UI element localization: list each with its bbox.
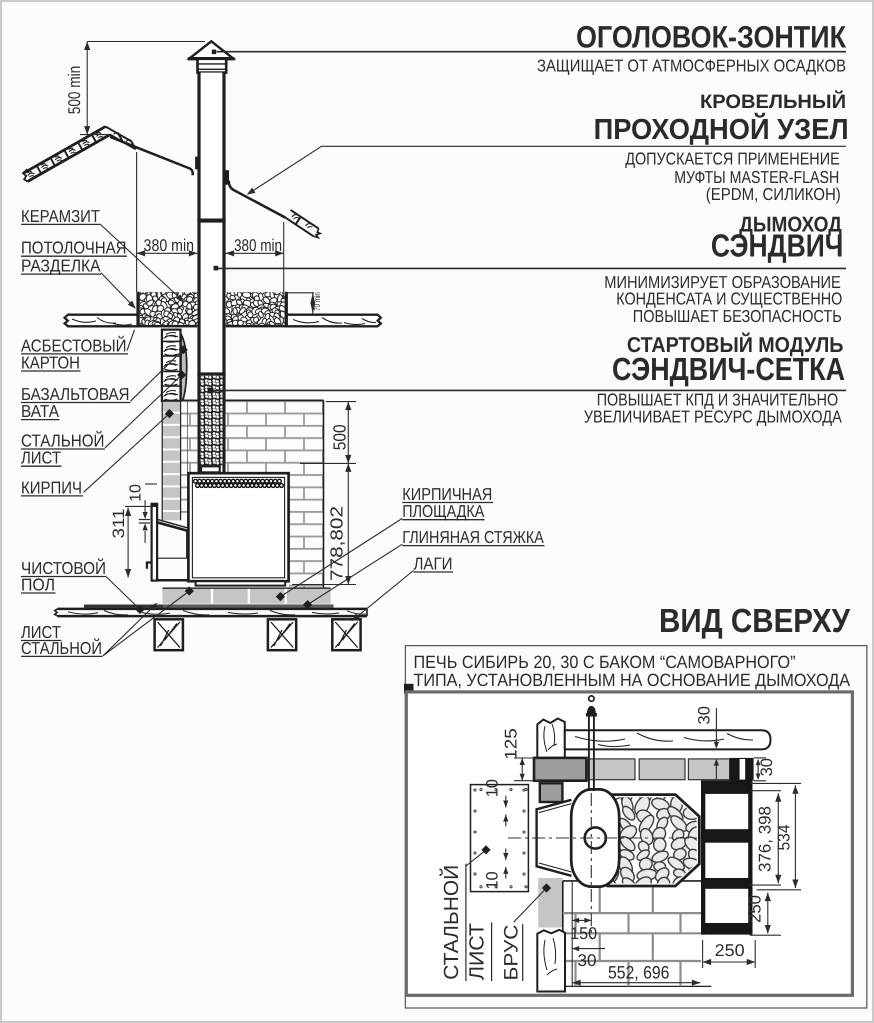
svg-text:311: 311 [110,509,128,539]
svg-text:УВЕЛИЧИВАЕТ РЕСУРС ДЫМОХОДА: УВЕЛИЧИВАЕТ РЕСУРС ДЫМОХОДА [584,407,842,427]
svg-text:30: 30 [758,758,776,776]
svg-text:ПЕЧЬ СИБИРЬ 20, 30 С БАКОМ “СА: ПЕЧЬ СИБИРЬ 20, 30 С БАКОМ “САМОВАРНОГО” [414,652,796,672]
svg-text:778,802: 778,802 [327,506,347,581]
svg-text:ПЛОЩАДКА: ПЛОЩАДКА [402,501,484,521]
svg-text:(EPDM, СИЛИКОН): (EPDM, СИЛИКОН) [706,184,841,204]
svg-text:БРУС: БРУС [500,925,522,981]
svg-text:ПОВЫШАЕТ БЕЗОПАСНОСТЬ: ПОВЫШАЕТ БЕЗОПАСНОСТЬ [633,306,842,326]
svg-text:КРОВЕЛЬНЫЙ: КРОВЕЛЬНЫЙ [700,90,846,113]
svg-text:380 min: 380 min [144,236,195,255]
svg-text:ЛИСТ: ЛИСТ [465,923,488,980]
svg-text:10: 10 [483,779,501,797]
svg-text:ЛИСТ: ЛИСТ [21,448,61,468]
svg-text:500 min: 500 min [65,66,84,115]
svg-text:КИРПИЧ: КИРПИЧ [21,477,82,497]
svg-text:СЭНДВИЧ: СЭНДВИЧ [711,228,844,264]
svg-text:125: 125 [502,728,521,760]
svg-text:ОГОЛОВОК-ЗОНТИК: ОГОЛОВОК-ЗОНТИК [576,20,846,55]
svg-text:250: 250 [715,941,745,960]
svg-text:ЛАГИ: ЛАГИ [414,553,453,573]
svg-text:500: 500 [330,424,350,450]
svg-text:70 min: 70 min [312,292,322,311]
svg-text:РАЗДЕЛКА: РАЗДЕЛКА [21,256,101,276]
svg-text:СТАЛЬНОЙ: СТАЛЬНОЙ [439,865,463,980]
svg-text:ВАТА: ВАТА [21,401,59,421]
svg-text:534: 534 [775,825,794,851]
svg-text:10: 10 [127,484,144,502]
svg-text:КАРТОН: КАРТОН [21,352,80,372]
svg-text:ДОПУСКАЕТСЯ ПРИМЕНЕНИЕ: ДОПУСКАЕТСЯ ПРИМЕНЕНИЕ [625,149,840,169]
svg-text:ПОЛ: ПОЛ [21,574,55,594]
svg-text:ГЛИНЯНАЯ СТЯЖКА: ГЛИНЯНАЯ СТЯЖКА [402,527,544,547]
svg-text:СТАЛЬНОЙ: СТАЛЬНОЙ [21,638,102,658]
svg-text:ВИД СВЕРХУ: ВИД СВЕРХУ [659,603,851,640]
svg-text:30: 30 [696,706,714,724]
svg-text:380 min: 380 min [234,236,282,255]
svg-text:ЗАЩИЩАЕТ ОТ АТМОСФЕРНЫХ ОСАДКО: ЗАЩИЩАЕТ ОТ АТМОСФЕРНЫХ ОСАДКОВ [537,56,846,76]
svg-text:150: 150 [570,924,597,943]
svg-text:250: 250 [746,895,765,923]
svg-text:30: 30 [578,951,597,970]
svg-text:552, 696: 552, 696 [608,963,670,983]
svg-text:10: 10 [483,871,501,889]
svg-text:СЭНДВИЧ-СЕТКА: СЭНДВИЧ-СЕТКА [612,351,845,387]
svg-text:ТИПА, УСТАНОВЛЕННЫМ НА ОСНОВАН: ТИПА, УСТАНОВЛЕННЫМ НА ОСНОВАНИЕ ДЫМОХОД… [414,670,851,690]
svg-text:376, 398: 376, 398 [756,806,775,872]
svg-text:ПРОХОДНОЙ УЗЕЛ: ПРОХОДНОЙ УЗЕЛ [594,112,849,146]
svg-text:КЕРАМЗИТ: КЕРАМЗИТ [21,206,100,226]
